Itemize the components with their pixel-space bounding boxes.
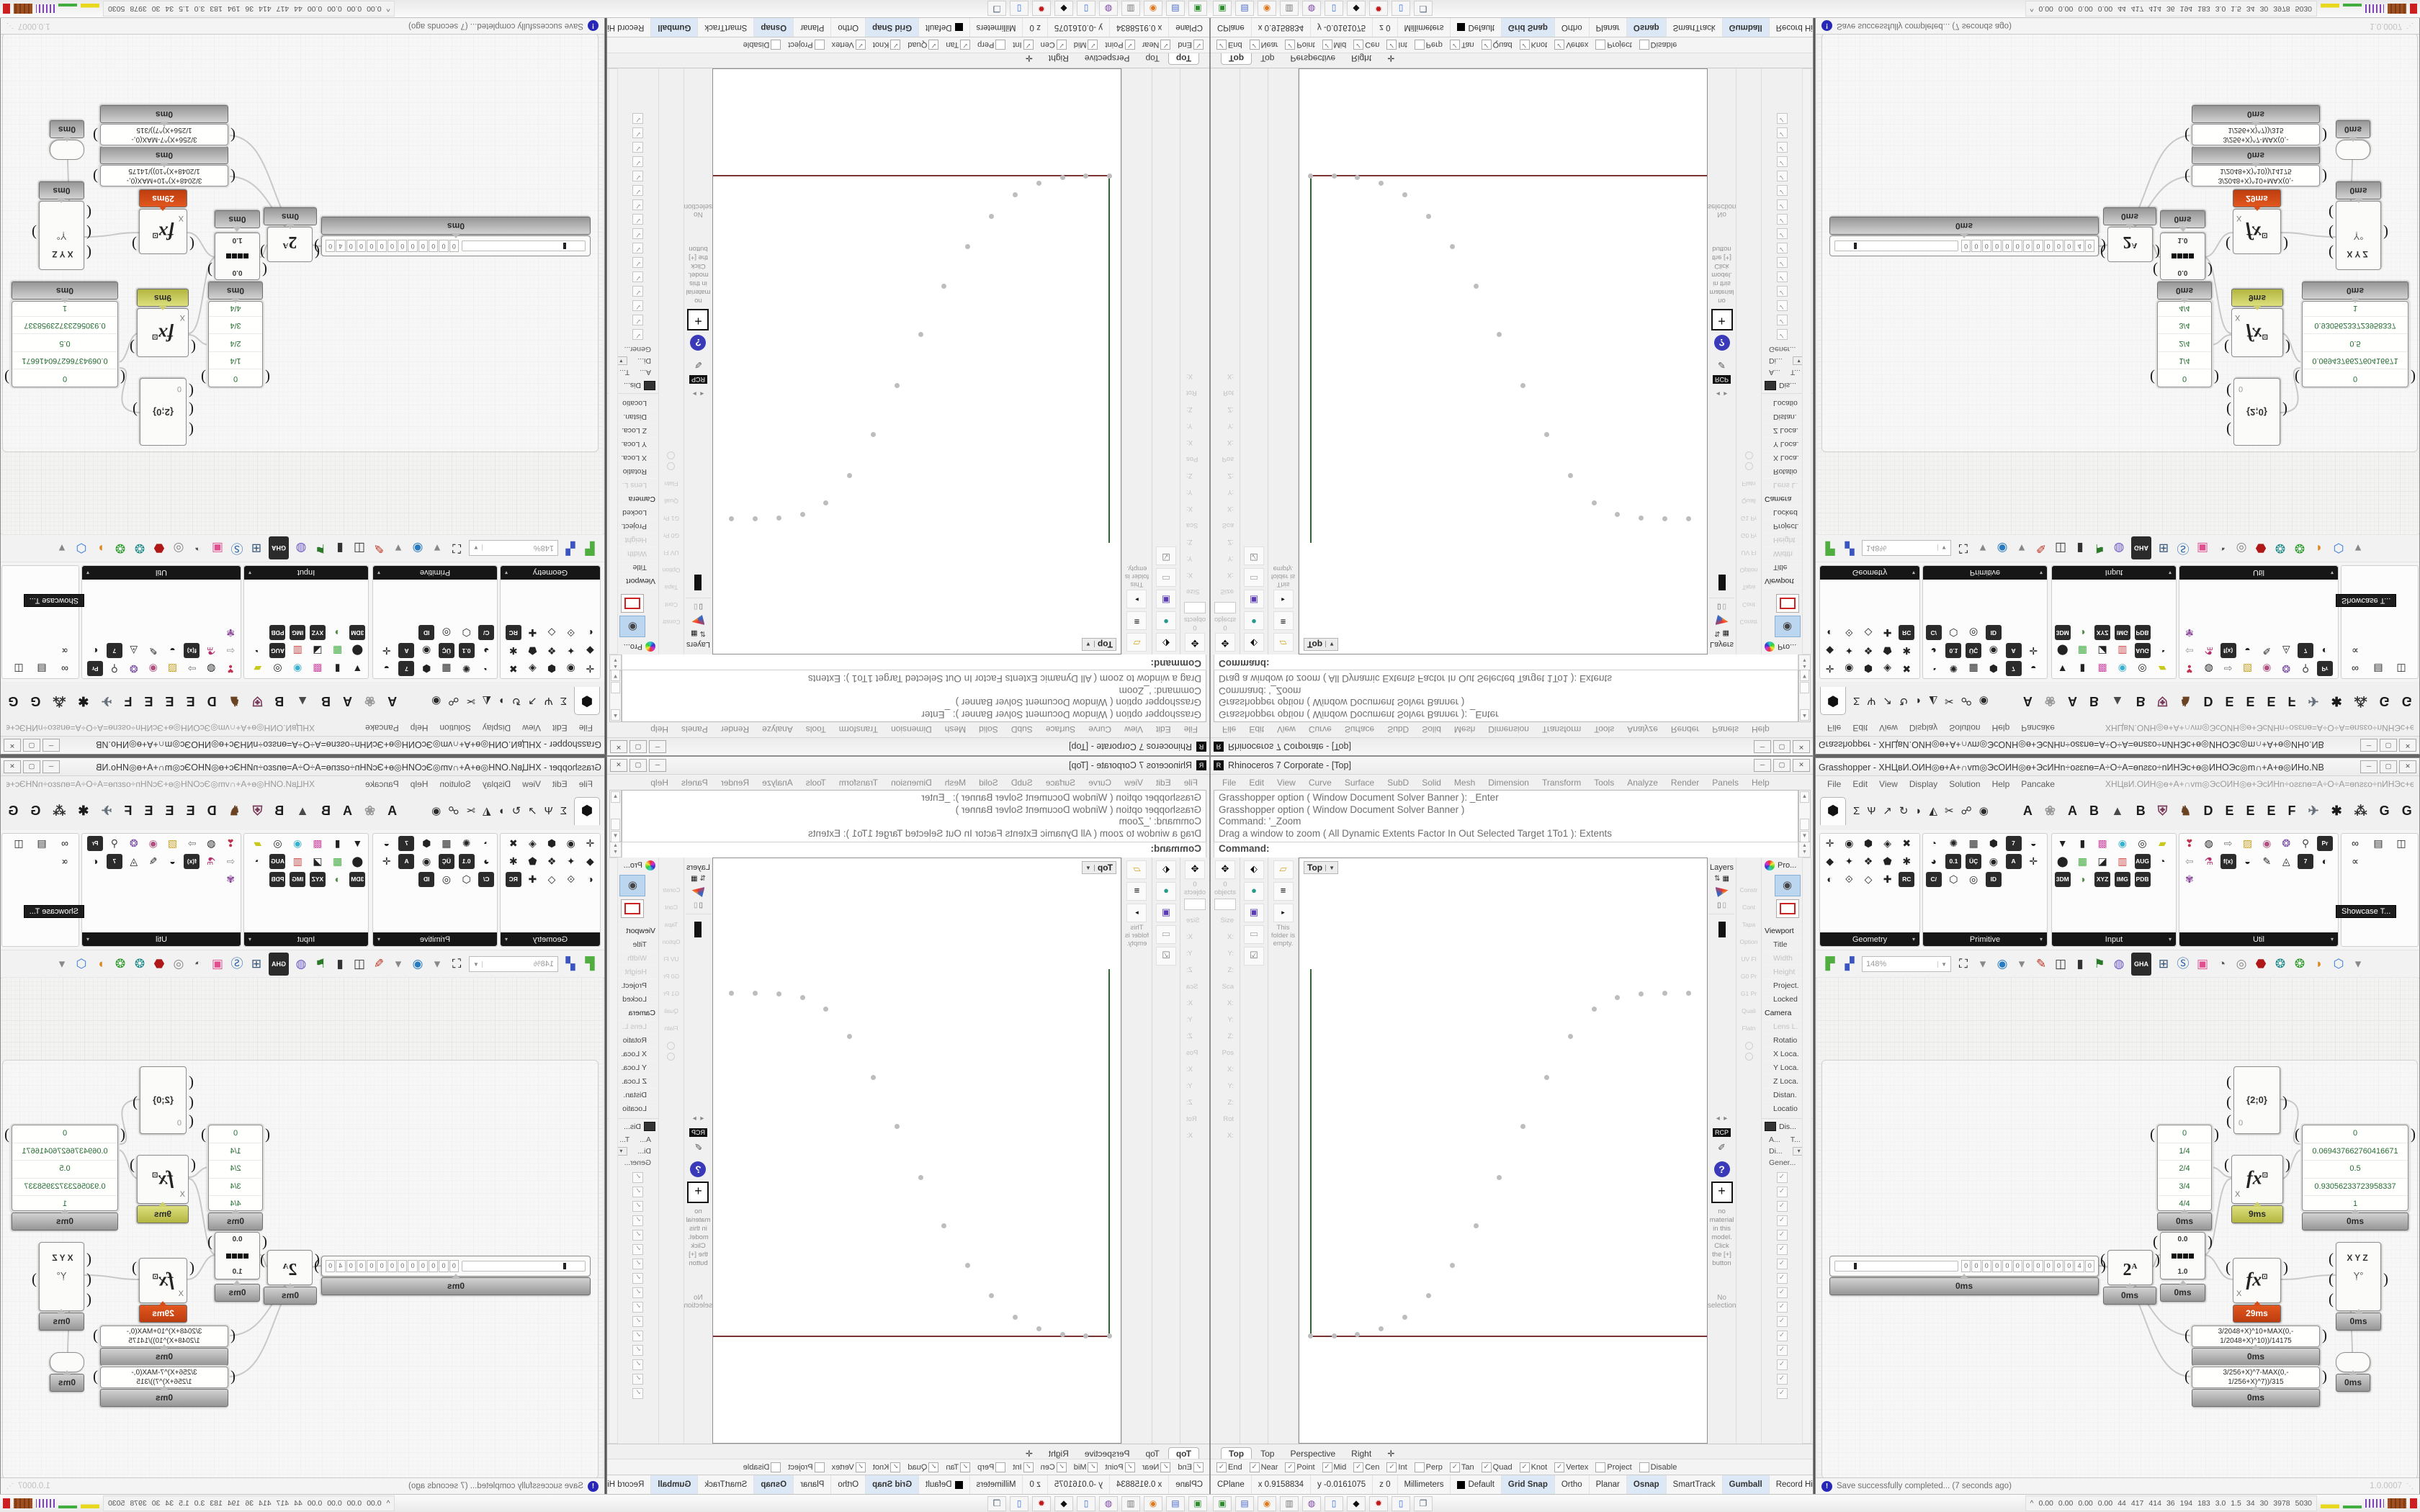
viewport-dropdown-icon[interactable]: ▼ bbox=[1085, 642, 1095, 648]
osnap-toggle[interactable]: Quad bbox=[1482, 40, 1512, 50]
status-cell[interactable]: Default bbox=[1451, 18, 1501, 37]
gh-category-tab-icon[interactable]: ☍ bbox=[448, 804, 459, 817]
toolbar-icon[interactable]: ▭ bbox=[1244, 568, 1264, 587]
properties-scrollbar[interactable] bbox=[609, 858, 618, 1444]
gh-plugin-tab[interactable]: E bbox=[2246, 694, 2254, 709]
gh-menu-item[interactable]: Display bbox=[477, 778, 516, 791]
component-icon[interactable]: ⬟ bbox=[1880, 643, 1896, 658]
component-icon[interactable]: ▰ bbox=[250, 661, 266, 676]
component-icon[interactable]: ◉ bbox=[2115, 661, 2130, 676]
osnap-toggle[interactable]: Vertex bbox=[832, 1462, 866, 1472]
osnap-toggle[interactable]: Project bbox=[788, 1462, 824, 1472]
relay-node[interactable] bbox=[50, 140, 84, 160]
toolbar-icon[interactable]: ❂ bbox=[133, 539, 147, 557]
status-cell[interactable]: SmartTrack bbox=[697, 18, 753, 37]
properties-scrollbar[interactable] bbox=[1802, 858, 1811, 1444]
component-icon[interactable]: ◎ bbox=[439, 872, 454, 887]
component-icon[interactable]: ▦ bbox=[1966, 661, 1981, 676]
component-icon[interactable]: ▥ bbox=[2115, 854, 2130, 869]
component-icon[interactable]: ▼ bbox=[2055, 661, 2071, 676]
component-icon[interactable]: 3DM bbox=[2055, 872, 2071, 887]
gh-category-tab-icon[interactable]: ◭ bbox=[483, 804, 491, 817]
component-icon[interactable]: ÜÇ bbox=[439, 643, 454, 658]
toolbar-icon[interactable]: ✎ bbox=[2034, 539, 2048, 557]
osnap-toggle[interactable]: Perp bbox=[977, 40, 1005, 50]
gh-plugin-tab[interactable]: G bbox=[30, 694, 40, 709]
component-icon[interactable]: ∞ bbox=[2347, 836, 2363, 851]
toolbar-icon[interactable]: ▞ bbox=[563, 955, 578, 973]
component-icon[interactable]: ID bbox=[1986, 872, 2002, 887]
path-panel[interactable]: ( ( ( ) {2;0} 0 bbox=[2233, 378, 2280, 446]
rhino-viewport-top[interactable]: Top ▼ bbox=[712, 68, 1121, 654]
toolbar-icon[interactable]: ◍ bbox=[2112, 955, 2126, 973]
gh-category-tab-icon[interactable]: ◗ bbox=[498, 805, 505, 817]
component-icon[interactable]: ⚲ bbox=[2298, 836, 2313, 851]
taskbar-app-icon[interactable]: ▯ bbox=[1077, 1496, 1095, 1511]
close-button[interactable]: ✕ bbox=[4, 739, 21, 752]
display-checkbox[interactable]: ✓ bbox=[1777, 156, 1788, 167]
toolbar-icon[interactable]: GHA bbox=[2131, 953, 2151, 976]
add-material-button[interactable]: + bbox=[688, 309, 709, 330]
toolbar-icon[interactable]: Ⓢ bbox=[230, 539, 244, 557]
component-icon[interactable]: A bbox=[2006, 854, 2022, 869]
scatter-point[interactable] bbox=[1568, 473, 1573, 478]
gh-plugin-tab[interactable]: ✱ bbox=[78, 694, 89, 709]
component-icon[interactable]: ◒ bbox=[2240, 643, 2256, 658]
palette-footer-util[interactable]: Util▾ bbox=[2179, 932, 2338, 946]
status-cell[interactable]: Osnap bbox=[1627, 18, 1667, 37]
component-icon[interactable]: ÜÇ bbox=[439, 854, 454, 869]
camera-icon[interactable]: ◉ bbox=[1775, 875, 1801, 896]
status-cell[interactable]: z 0 bbox=[1373, 18, 1397, 37]
component-icon[interactable]: ✱ bbox=[1899, 854, 1914, 869]
scatter-point[interactable] bbox=[871, 432, 876, 437]
folder-icon[interactable]: ▱ bbox=[1127, 633, 1147, 652]
component-icon[interactable]: ❖ bbox=[1860, 643, 1876, 658]
taskbar-app-icon[interactable]: ▣ bbox=[1213, 1496, 1232, 1511]
component-icon[interactable]: ⇨ bbox=[184, 836, 200, 851]
component-icon[interactable]: Pr bbox=[87, 836, 103, 851]
gh-plugin-tab[interactable]: D bbox=[2203, 804, 2213, 819]
viewport-tab[interactable]: Top bbox=[1139, 1448, 1167, 1459]
rhino-menu-item[interactable]: Tools bbox=[1588, 723, 1620, 736]
component-icon[interactable]: ⇦ bbox=[2182, 643, 2197, 658]
gh-category-tab-icon[interactable]: ↗ bbox=[528, 804, 537, 817]
camera-icon[interactable]: ◉ bbox=[620, 616, 646, 637]
gh-plugin-tab[interactable]: ⛨ bbox=[2158, 694, 2168, 709]
component-icon[interactable]: Pr bbox=[2317, 661, 2333, 676]
help-icon[interactable]: ? bbox=[1714, 1161, 1730, 1177]
component-icon[interactable]: ▨ bbox=[2240, 661, 2256, 676]
toolbar-icon[interactable]: GHA bbox=[2131, 536, 2151, 559]
palette-footer-input[interactable]: Input▾ bbox=[244, 566, 368, 580]
layers-pager[interactable]: ◂ ▸ bbox=[684, 1115, 712, 1122]
taskbar-app-icon[interactable]: ◉ bbox=[1144, 1496, 1162, 1511]
viewport-label[interactable]: Top ▼ bbox=[1082, 861, 1116, 874]
relay-node[interactable] bbox=[2336, 1352, 2370, 1372]
component-icon[interactable]: PDB bbox=[2135, 872, 2151, 887]
component-icon[interactable]: 7 bbox=[2006, 661, 2022, 676]
gh-menu-item[interactable]: Edit bbox=[547, 778, 573, 791]
component-icon[interactable]: ◉ bbox=[418, 643, 434, 658]
path-panel[interactable]: ( ( ( ) {2;0} 0 bbox=[140, 378, 187, 446]
display-checkbox[interactable]: ✓ bbox=[633, 228, 644, 239]
gh-category-tab-icon[interactable]: Σ bbox=[560, 696, 567, 708]
gh-titlebar[interactable]: Grasshopper - XHЦвИ.ОИН◎ѳ+А+∩vm◎ЭсОИН◎ѳ+… bbox=[1, 758, 604, 776]
layers-toolbar-icon[interactable]: ▦ bbox=[1722, 629, 1729, 637]
display-checkbox[interactable]: ✓ bbox=[633, 127, 644, 138]
color-wedge-icon[interactable] bbox=[1716, 887, 1729, 897]
taskbar-app-icon[interactable]: ◍ bbox=[1099, 1, 1118, 17]
scatter-point[interactable] bbox=[1402, 1315, 1407, 1320]
osnap-toggle[interactable]: Cen bbox=[1041, 1462, 1067, 1472]
rhino-menu-item[interactable]: Analyze bbox=[756, 776, 799, 789]
toolbar-icon[interactable]: ⛶ bbox=[1956, 539, 1971, 557]
component-icon[interactable]: ▰ bbox=[2154, 836, 2170, 851]
component-icon[interactable]: ◐ bbox=[1822, 872, 1838, 887]
toolbar-icon[interactable]: ✎ bbox=[372, 539, 386, 557]
toolbar-icon[interactable]: ● bbox=[1156, 611, 1176, 630]
osnap-toggle[interactable]: Tan bbox=[946, 40, 970, 50]
slider-cell[interactable]: 0 bbox=[418, 240, 428, 252]
osnap-toggle[interactable]: Mid bbox=[1074, 1462, 1098, 1472]
viewport-tab[interactable]: ✛ bbox=[1018, 1448, 1040, 1459]
close-button[interactable]: ✕ bbox=[610, 740, 627, 753]
toolbar-icon[interactable]: ▛ bbox=[583, 955, 597, 973]
component-icon[interactable]: ∝ bbox=[57, 854, 73, 869]
scroll-thumb[interactable] bbox=[611, 682, 620, 693]
gh-category-tab-icon[interactable]: Ѱ bbox=[544, 696, 553, 708]
display-checkbox[interactable]: ✓ bbox=[633, 156, 644, 167]
component-icon[interactable]: ◕ bbox=[478, 643, 494, 658]
component-icon[interactable]: ◒ bbox=[2025, 836, 2041, 851]
component-icon[interactable]: ◫ bbox=[11, 661, 27, 676]
component-icon[interactable]: ✖ bbox=[1899, 661, 1914, 676]
component-icon[interactable]: ✚ bbox=[524, 872, 540, 887]
component-icon[interactable]: ⬡ bbox=[459, 872, 475, 887]
osnap-toggle[interactable]: Cen bbox=[1041, 40, 1067, 50]
component-icon[interactable]: ◕ bbox=[1926, 643, 1942, 658]
scatter-point[interactable] bbox=[918, 332, 923, 337]
taskbar-app-icon[interactable]: ▥ bbox=[1121, 1, 1140, 17]
expression-component-1[interactable]: ( ) fx⊡ X bbox=[137, 308, 189, 357]
slider-cell[interactable]: 0 bbox=[2023, 240, 2033, 252]
component-icon[interactable]: ✦ bbox=[1841, 854, 1857, 869]
slider-cell[interactable]: 0 bbox=[326, 1260, 335, 1272]
rhino-menu-item[interactable]: File bbox=[1216, 723, 1242, 736]
component-icon[interactable]: ❂ bbox=[2278, 836, 2294, 851]
toolbar-icon[interactable]: Ⓢ bbox=[2176, 539, 2190, 557]
osnap-toggle[interactable]: Quad bbox=[1482, 1462, 1512, 1472]
component-icon[interactable]: ✺ bbox=[1945, 661, 1961, 676]
gh-category-tab-icon[interactable]: Ѱ bbox=[544, 805, 553, 817]
component-icon[interactable]: ◎ bbox=[1966, 872, 1981, 887]
rhino-menu-item[interactable]: Panels bbox=[1706, 776, 1744, 789]
component-icon[interactable]: ID bbox=[418, 872, 434, 887]
component-icon[interactable]: ▦ bbox=[1966, 836, 1981, 851]
toolbar-icon[interactable]: ▾ bbox=[2015, 955, 2029, 973]
scatter-point[interactable] bbox=[989, 1293, 994, 1298]
taskbar-app-icon[interactable]: ◍ bbox=[1302, 1496, 1321, 1511]
display-checkbox[interactable]: ✓ bbox=[633, 113, 644, 124]
viewport-tab[interactable]: Top bbox=[1221, 1447, 1252, 1459]
folder-icon[interactable]: ▱ bbox=[1273, 860, 1294, 879]
help-icon[interactable]: ? bbox=[1714, 335, 1730, 351]
slider-grip[interactable] bbox=[1854, 1263, 1857, 1269]
rcp-tab[interactable]: RCP bbox=[1713, 1128, 1731, 1137]
toolbar-icon[interactable]: ▾ bbox=[1976, 955, 1990, 973]
gh-category-tab-icon[interactable]: ↻ bbox=[512, 804, 521, 817]
palette-footer-util[interactable]: Util▾ bbox=[82, 566, 241, 580]
component-icon[interactable]: ◬ bbox=[2278, 854, 2294, 869]
scatter-point[interactable] bbox=[1379, 181, 1384, 186]
viewport-tab[interactable]: Perspective bbox=[1283, 53, 1343, 64]
viewport-tab[interactable]: Top bbox=[1253, 1448, 1281, 1459]
component-icon[interactable]: ◉ bbox=[1986, 854, 2002, 869]
slider-grip[interactable] bbox=[1854, 243, 1857, 249]
component-icon[interactable]: ✖ bbox=[506, 836, 521, 851]
toolbar-icon[interactable]: ◗ bbox=[94, 539, 108, 557]
palette-footer-input[interactable]: Input▾ bbox=[2052, 932, 2176, 946]
rcp-tab[interactable]: RCP bbox=[689, 375, 707, 384]
data-panel-values[interactable]: ( ) 00.0694376627604166710.50.9305623372… bbox=[2302, 1125, 2408, 1211]
component-icon[interactable]: AUG bbox=[2135, 854, 2151, 869]
rhino-menu-item[interactable]: Help bbox=[645, 776, 674, 789]
scroll-up-icon[interactable]: ▲ bbox=[1800, 791, 1809, 803]
gh-menu-item[interactable]: Solution bbox=[1943, 721, 1986, 734]
taskbar-app-icon[interactable]: ◍ bbox=[1302, 1, 1321, 17]
osnap-toggle[interactable]: Knot bbox=[873, 1462, 901, 1472]
relay-node[interactable] bbox=[50, 1352, 84, 1372]
status-cell[interactable]: Ortho bbox=[1555, 1475, 1590, 1494]
scatter-point[interactable] bbox=[1662, 516, 1667, 521]
gh-category-tab-icon[interactable]: ↗ bbox=[528, 695, 537, 708]
layers-toolbar-icon[interactable]: ▦ bbox=[691, 629, 697, 637]
toolbar-icon[interactable]: ⚑ bbox=[313, 955, 328, 973]
component-icon[interactable]: ◫ bbox=[11, 836, 27, 851]
gh-plugin-tab[interactable]: ❀ bbox=[2045, 694, 2056, 709]
component-icon[interactable]: ◑ bbox=[330, 872, 346, 887]
component-icon[interactable]: ⬡ bbox=[1945, 872, 1961, 887]
scatter-point[interactable] bbox=[1107, 174, 1112, 179]
osnap-toggle[interactable]: Cen bbox=[1353, 1462, 1379, 1472]
gh-plugin-tab[interactable]: ❀ bbox=[364, 804, 375, 819]
taskbar-app-icon[interactable]: ▯ bbox=[1010, 1, 1028, 17]
component-icon[interactable]: ✛ bbox=[1822, 661, 1838, 676]
rhino-menu-item[interactable]: Help bbox=[1746, 723, 1775, 736]
rhino-menu-item[interactable]: Tools bbox=[800, 776, 832, 789]
gh-canvas[interactable]: ) 0000000000040 0ms ( ) 2A 0ms bbox=[1816, 977, 2419, 1478]
toolbar-icon[interactable]: ◍ bbox=[294, 955, 308, 973]
toolbar-icon[interactable]: ▭ bbox=[1156, 568, 1176, 587]
slider-cell[interactable]: 0 bbox=[346, 1260, 356, 1272]
component-icon[interactable]: ◐ bbox=[2317, 854, 2333, 869]
display-checkbox[interactable]: ✓ bbox=[633, 171, 644, 181]
component-icon[interactable]: ✾ bbox=[223, 872, 238, 887]
rhino-titlebar[interactable]: R Rhinoceros 7 Corporate - [Top] ─ ▢ ✕ bbox=[1211, 737, 1813, 755]
radio-icon[interactable] bbox=[1745, 462, 1753, 470]
palette-footer-geometry[interactable]: Geometry▾ bbox=[501, 566, 600, 580]
minimize-button[interactable]: ─ bbox=[42, 760, 60, 773]
component-icon[interactable]: IMG bbox=[2115, 872, 2130, 887]
component-icon[interactable]: ID bbox=[418, 625, 434, 640]
gh-plugin-tab[interactable]: A bbox=[2068, 804, 2077, 819]
data-panel-values[interactable]: ( ) 00.0694376627604166710.50.9305623372… bbox=[12, 301, 118, 387]
component-icon[interactable]: 7 bbox=[2298, 854, 2313, 869]
component-icon[interactable]: Pr bbox=[2317, 836, 2333, 851]
folder-icon[interactable]: ▱ bbox=[1273, 633, 1294, 652]
component-icon[interactable]: ✎ bbox=[145, 643, 161, 658]
component-icon[interactable]: ⇦ bbox=[223, 643, 238, 658]
expand-icon[interactable]: ▸ bbox=[1273, 904, 1294, 922]
display-checkbox[interactable]: ✓ bbox=[1777, 1244, 1788, 1255]
component-icon[interactable]: ◔ bbox=[2154, 643, 2170, 658]
scatter-point[interactable] bbox=[871, 1075, 876, 1080]
component-icon[interactable]: ◉ bbox=[2115, 836, 2130, 851]
toolbar-icon[interactable]: ◫ bbox=[352, 955, 367, 973]
component-icon[interactable]: ▮ bbox=[2074, 661, 2090, 676]
rhino-menu-item[interactable]: Analyze bbox=[756, 723, 799, 736]
osnap-toggle[interactable]: Mid bbox=[1322, 40, 1347, 50]
status-cell[interactable]: Osnap bbox=[753, 1475, 793, 1494]
slider-cell[interactable]: 0 bbox=[2033, 1260, 2043, 1272]
component-icon[interactable]: ✺ bbox=[459, 836, 475, 851]
data-panel-fractions[interactable]: ( ) 01/42/43/44/4 bbox=[2157, 1125, 2212, 1211]
rhino-menu-item[interactable]: SubD bbox=[1381, 723, 1415, 736]
minimize-button[interactable]: ─ bbox=[649, 759, 666, 772]
toolbar-icon[interactable]: ⛶ bbox=[449, 539, 464, 557]
toolbar-icon[interactable]: ▮ bbox=[333, 955, 347, 973]
component-icon[interactable]: ◬ bbox=[126, 643, 142, 658]
component-icon[interactable]: ✎ bbox=[2259, 643, 2275, 658]
resize-grip-icon[interactable]: ⋱ bbox=[2406, 22, 2414, 30]
taskbar-app-icon[interactable]: ▤ bbox=[1166, 1, 1185, 17]
rhino-menu-item[interactable]: View bbox=[1119, 723, 1149, 736]
slider-cell[interactable]: 0 bbox=[357, 240, 366, 252]
slider-cell[interactable]: 0 bbox=[377, 240, 387, 252]
rhino-menu-item[interactable]: Surface bbox=[1040, 776, 1081, 789]
component-icon[interactable]: ▥ bbox=[290, 643, 305, 658]
toolbar-icon[interactable]: ◉ bbox=[411, 955, 425, 973]
expression-component-1[interactable]: ( ) fx⊡ X bbox=[137, 1155, 189, 1204]
boxedit-input[interactable] bbox=[1184, 602, 1206, 613]
status-cell[interactable]: x 0.9158834 bbox=[1109, 1475, 1168, 1494]
scatter-point[interactable] bbox=[1450, 1263, 1455, 1268]
doc-icons[interactable]: ▯▯ bbox=[1708, 901, 1736, 909]
scatter-point[interactable] bbox=[1426, 1293, 1431, 1298]
expression-panel-1[interactable]: ( ) 3/2048+X)^10+MAX(0,-1/2048+X)^10))/1… bbox=[100, 165, 228, 186]
component-icon[interactable]: C/ bbox=[478, 872, 494, 887]
slider-cell[interactable]: 0 bbox=[449, 1260, 459, 1272]
resize-grip-icon[interactable]: ⋱ bbox=[6, 1482, 14, 1490]
scatter-point[interactable] bbox=[1592, 500, 1597, 505]
component-icon[interactable]: ÜÇ bbox=[1966, 643, 1981, 658]
display-checkbox[interactable]: ✓ bbox=[1777, 1230, 1788, 1241]
osnap-toggle[interactable]: Near bbox=[1250, 1462, 1278, 1472]
gh-category-tab-icon[interactable]: Ѱ bbox=[1867, 805, 1875, 817]
component-icon[interactable]: ✚ bbox=[524, 625, 540, 640]
rhino-menu-item[interactable]: Solid bbox=[973, 776, 1004, 789]
taskbar-app-icon[interactable]: ◉ bbox=[1144, 1, 1162, 17]
gh-plugin-tab[interactable]: ✱ bbox=[2331, 804, 2342, 819]
component-icon[interactable]: ✚ bbox=[1880, 625, 1896, 640]
gh-plugin-tab[interactable]: ✈ bbox=[101, 804, 112, 819]
display-checkbox[interactable]: ✓ bbox=[1777, 1316, 1788, 1327]
toolbar-icon[interactable]: ▾ bbox=[430, 955, 444, 973]
component-icon[interactable]: 7 bbox=[2298, 643, 2313, 658]
component-icon[interactable]: RC bbox=[506, 872, 521, 887]
component-icon[interactable]: ◐ bbox=[582, 872, 598, 887]
component-icon[interactable]: ✱ bbox=[1899, 643, 1914, 658]
doc-icons[interactable]: ▯▯ bbox=[684, 603, 712, 611]
component-icon[interactable]: ⬤ bbox=[349, 643, 365, 658]
component-icon[interactable]: ⬢ bbox=[544, 836, 560, 851]
graph-mapper[interactable]: ( ) 0.0 1.0 bbox=[215, 233, 260, 280]
display-checkbox[interactable]: ✓ bbox=[1777, 257, 1788, 268]
rhino-command-history[interactable]: Grasshopper option ( Window Document Sol… bbox=[1214, 667, 1798, 722]
minimize-button[interactable]: ─ bbox=[2360, 760, 2378, 773]
component-icon[interactable]: ❖ bbox=[1860, 854, 1876, 869]
gh-category-tab-icon[interactable]: ☍ bbox=[1961, 804, 1972, 817]
osnap-toggle[interactable]: Tan bbox=[1450, 1462, 1474, 1472]
gh-plugin-tab[interactable]: E bbox=[145, 694, 153, 709]
display-checkbox[interactable]: ✓ bbox=[1777, 1302, 1788, 1313]
toolbar-icon[interactable]: ▣ bbox=[2195, 955, 2210, 973]
rhino-menu-item[interactable]: File bbox=[1178, 776, 1204, 789]
toolbar-icon[interactable]: ⬖ bbox=[1156, 860, 1176, 879]
scroll-down-icon[interactable]: ▼ bbox=[611, 831, 620, 842]
component-icon[interactable]: ◍ bbox=[2201, 836, 2217, 851]
power-component[interactable]: ( ) 2A bbox=[2107, 227, 2153, 262]
gh-menu-item[interactable]: Pancake bbox=[2015, 721, 2061, 734]
taskbar-app-icon[interactable]: ▯ bbox=[1391, 1, 1410, 17]
component-icon[interactable]: RC bbox=[1899, 625, 1914, 640]
slider-grip[interactable] bbox=[563, 1263, 566, 1269]
command-spinner[interactable]: ▲▼ bbox=[1798, 654, 1811, 670]
rhino-menu-item[interactable]: Tools bbox=[1588, 776, 1620, 789]
layers-toolbar-icon[interactable]: ▦ bbox=[691, 875, 697, 883]
rhino-menu-item[interactable]: Curve bbox=[1083, 776, 1117, 789]
rhino-menu-item[interactable]: View bbox=[1271, 776, 1301, 789]
osnap-toggle[interactable]: Tan bbox=[1450, 40, 1474, 50]
display-checkbox[interactable]: ✓ bbox=[633, 1230, 644, 1241]
component-icon[interactable]: RC bbox=[506, 625, 521, 640]
toolbar-icon[interactable]: ⛶ bbox=[449, 955, 464, 973]
display-checkbox[interactable]: ✓ bbox=[1777, 228, 1788, 239]
slider-cell[interactable]: 0 bbox=[2044, 1260, 2053, 1272]
toolbar-icon[interactable]: ▾ bbox=[391, 955, 405, 973]
rhino-menu-item[interactable]: Render bbox=[715, 723, 755, 736]
gh-plugin-tab[interactable]: G bbox=[2402, 804, 2412, 819]
osnap-toggle[interactable]: Vertex bbox=[1554, 40, 1588, 50]
component-icon[interactable]: ⬢ bbox=[1860, 836, 1876, 851]
status-cell[interactable]: z 0 bbox=[1022, 18, 1047, 37]
toolbar-icon[interactable]: ◫ bbox=[2053, 539, 2068, 557]
rhino-menu-item[interactable]: Mesh bbox=[1448, 776, 1481, 789]
component-icon[interactable]: ◒ bbox=[379, 836, 395, 851]
component-icon[interactable]: ✎ bbox=[2259, 854, 2275, 869]
component-icon[interactable]: ⇨ bbox=[2220, 836, 2236, 851]
status-cell[interactable]: Record History bbox=[1770, 1475, 1813, 1494]
component-icon[interactable]: ▦ bbox=[439, 661, 454, 676]
gh-plugin-tab[interactable]: G bbox=[8, 804, 18, 819]
rhino-menu-item[interactable]: Transform bbox=[833, 776, 884, 789]
component-icon[interactable]: ◔ bbox=[478, 836, 494, 851]
status-cell[interactable]: Ortho bbox=[1555, 18, 1590, 37]
osnap-toggle[interactable]: Quad bbox=[907, 40, 938, 50]
osnap-toggle[interactable]: Quad bbox=[907, 1462, 938, 1472]
component-icon[interactable]: ▼ bbox=[349, 661, 365, 676]
